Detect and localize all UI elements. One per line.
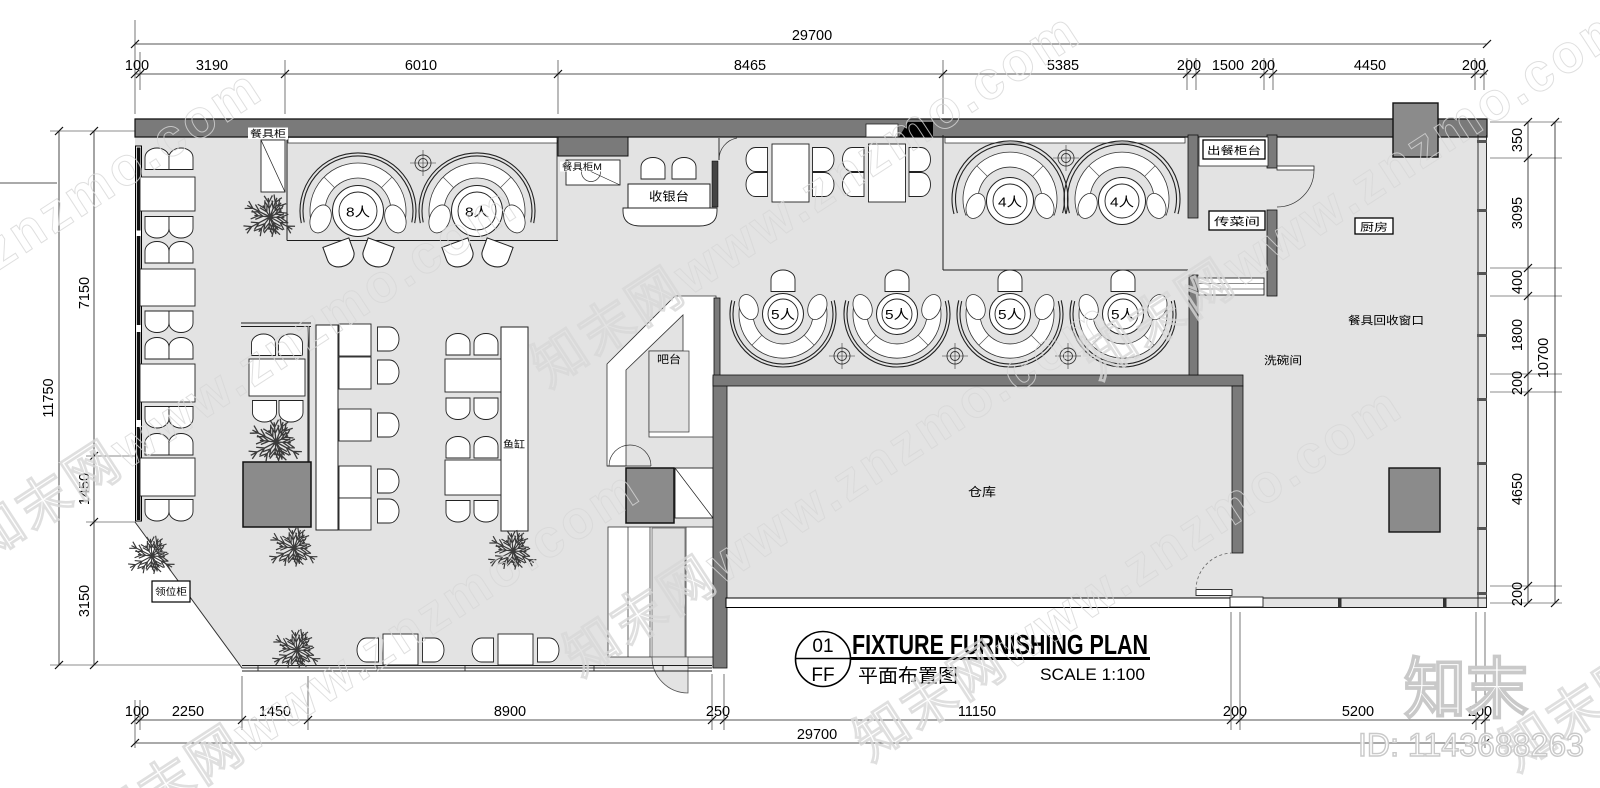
svg-text:8900: 8900	[494, 704, 526, 720]
svg-text:领位柜: 领位柜	[155, 586, 188, 598]
svg-text:350: 350	[1510, 128, 1526, 152]
svg-text:11750: 11750	[41, 378, 57, 417]
svg-text:200: 200	[1223, 704, 1247, 720]
svg-text:200: 200	[1510, 582, 1526, 606]
svg-text:鱼缸: 鱼缸	[503, 438, 525, 451]
svg-text:5200: 5200	[1342, 704, 1374, 720]
svg-text:吧台: 吧台	[657, 352, 681, 366]
svg-text:10700: 10700	[1536, 338, 1552, 378]
svg-text:餐具柜M: 餐具柜M	[562, 161, 602, 172]
svg-text:4650: 4650	[1510, 473, 1526, 505]
svg-text:6010: 6010	[405, 58, 437, 74]
svg-text:知末: 知末	[1404, 652, 1528, 726]
svg-text:1500: 1500	[1212, 58, 1244, 74]
svg-text:200: 200	[1251, 58, 1275, 74]
svg-text:01: 01	[812, 636, 833, 657]
svg-text:8465: 8465	[734, 58, 766, 74]
svg-text:ID: 1143688263: ID: 1143688263	[1358, 727, 1584, 763]
svg-text:29700: 29700	[792, 28, 832, 44]
svg-text:厨房: 厨房	[1360, 221, 1388, 234]
svg-text:FF: FF	[811, 665, 834, 686]
svg-text:200: 200	[1177, 58, 1201, 74]
svg-text:1800: 1800	[1510, 319, 1526, 351]
svg-text:仓库: 仓库	[968, 484, 996, 499]
svg-text:7150: 7150	[77, 277, 93, 309]
svg-text:餐具柜: 餐具柜	[250, 128, 287, 140]
svg-text:餐具回收窗口: 餐具回收窗口	[1348, 313, 1424, 327]
svg-text:洗碗间: 洗碗间	[1264, 353, 1302, 367]
svg-text:4450: 4450	[1354, 58, 1386, 74]
svg-text:100: 100	[125, 704, 149, 720]
svg-text:200: 200	[1462, 58, 1486, 74]
svg-text:出餐柜台: 出餐柜台	[1207, 144, 1261, 157]
svg-text:SCALE 1:100: SCALE 1:100	[1040, 665, 1145, 684]
svg-text:400: 400	[1510, 270, 1526, 294]
svg-text:100: 100	[125, 58, 149, 74]
svg-text:200: 200	[1510, 371, 1526, 395]
svg-text:收银台: 收银台	[649, 189, 689, 204]
svg-text:3095: 3095	[1510, 197, 1526, 229]
svg-text:250: 250	[706, 704, 730, 720]
svg-text:3150: 3150	[77, 585, 93, 617]
svg-text:29700: 29700	[797, 727, 837, 743]
svg-text:2250: 2250	[172, 704, 204, 720]
